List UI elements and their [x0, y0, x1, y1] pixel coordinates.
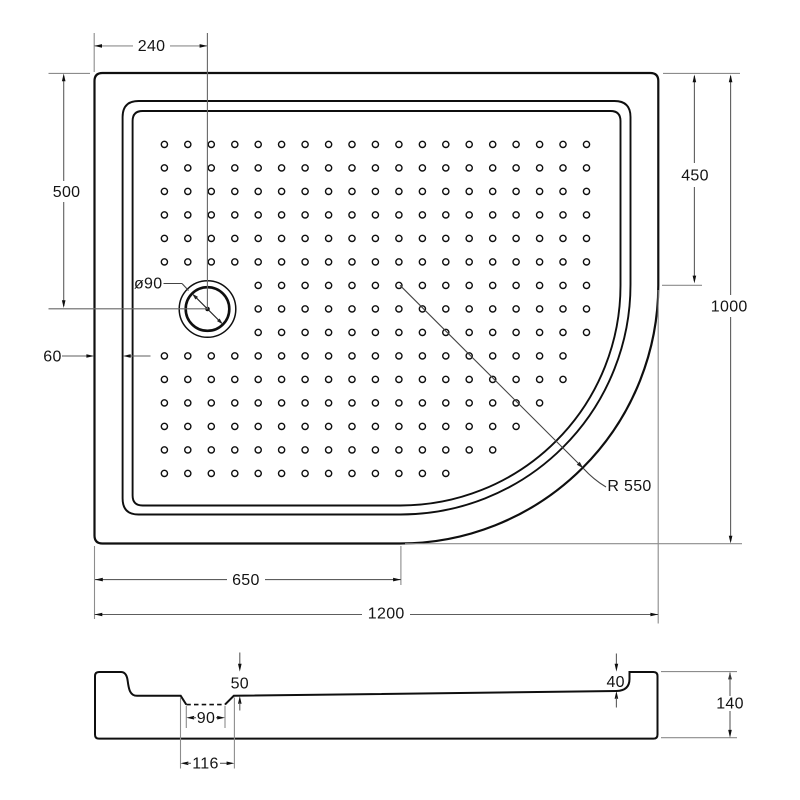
svg-text:1000: 1000 — [711, 299, 748, 316]
svg-text:40: 40 — [606, 674, 624, 691]
svg-text:240: 240 — [138, 38, 166, 55]
svg-text:450: 450 — [681, 167, 709, 184]
svg-text:116: 116 — [192, 756, 218, 773]
svg-text:500: 500 — [53, 184, 81, 201]
svg-text:50: 50 — [231, 675, 249, 692]
svg-text:R 550: R 550 — [607, 478, 651, 495]
svg-text:650: 650 — [232, 572, 260, 589]
svg-text:90: 90 — [197, 710, 215, 727]
svg-text:60: 60 — [43, 348, 61, 365]
svg-text:ø90: ø90 — [134, 276, 162, 293]
svg-text:140: 140 — [716, 696, 744, 713]
svg-text:1200: 1200 — [368, 605, 405, 622]
